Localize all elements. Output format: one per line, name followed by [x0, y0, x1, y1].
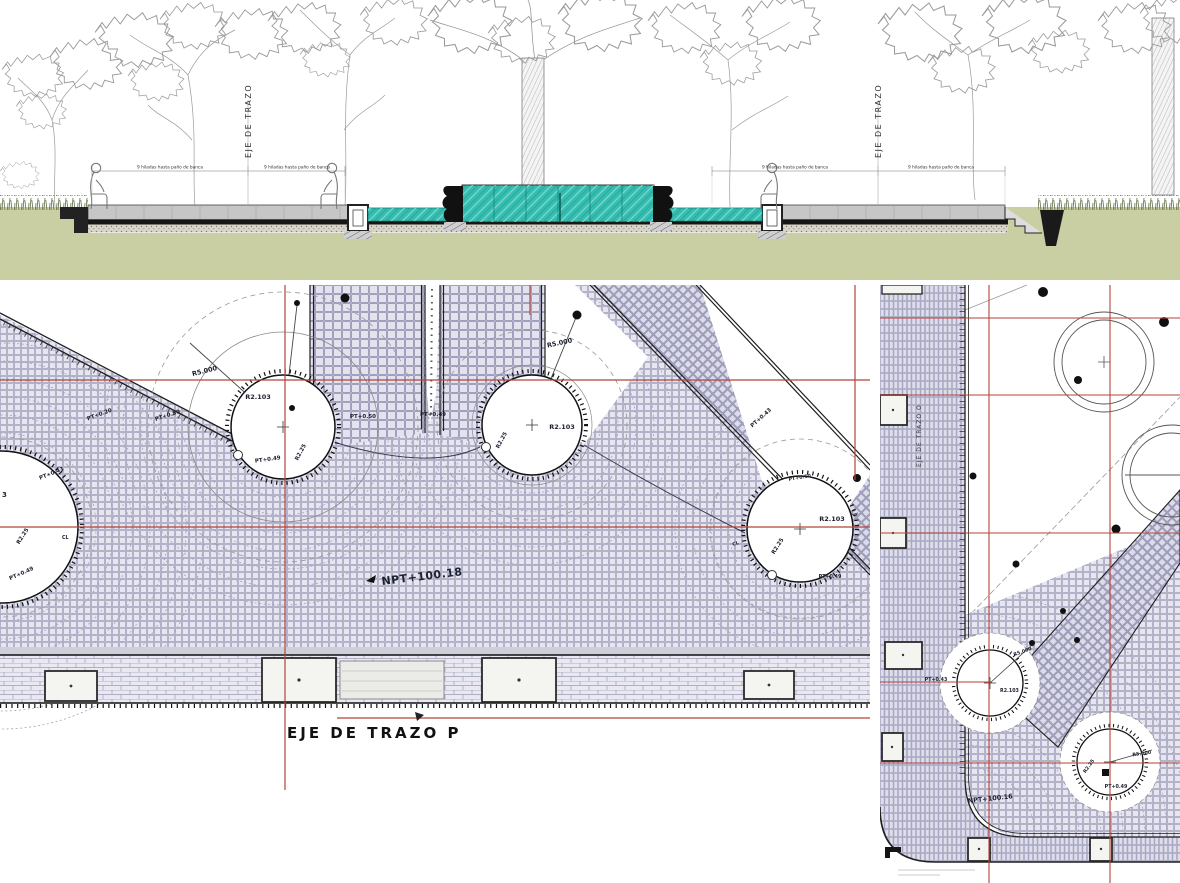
label-dpit1-pt: PT+0.43: [925, 677, 948, 683]
bench-slab: [340, 661, 444, 699]
label-pit-a-r2103: R2.103: [245, 393, 271, 401]
label-pit-d-rcut: 3: [2, 491, 7, 499]
axis-label-p: EJE DE TRAZO P: [287, 724, 461, 742]
dim-text-right-a: 9 hiladas hasta paño de banca: [762, 165, 828, 171]
grass-tufts-right: [1038, 195, 1180, 210]
axis-arrow-marker: [415, 712, 424, 721]
label-pit-d-cl: CL: [62, 535, 69, 541]
detail-tree-pit-1: [940, 633, 1040, 733]
axis-label-right: EJE DE TRAZO: [874, 84, 883, 158]
plan-drawing-detail: EJE DE TRAZO O R5.000 R2.103 PT+0.43 R5.…: [880, 285, 1180, 883]
plan-drawing-main: R5.000 R2.103 R2.25 PT+0.49 PT+0.50 PT+0…: [0, 285, 870, 790]
below-band-lines: [898, 870, 975, 875]
drawing-sheet: 9 hiladas hasta paño de banca 9 hiladas …: [0, 0, 1180, 883]
paving-plan-panel: R5.000 R2.103 R2.25 PT+0.49 PT+0.50 PT+0…: [0, 285, 870, 794]
trees-lineart: [0, 0, 1180, 208]
axis-label-left: EJE DE TRAZO: [244, 84, 253, 158]
dim-text-right-b: 9 hiladas hasta paño de banca: [908, 165, 974, 171]
label-pit-c-r2103: R2.103: [819, 515, 845, 523]
label-band1-pt: PT+0.50: [350, 414, 376, 420]
section-drawing-panel: 9 hiladas hasta paño de banca 9 hiladas …: [0, 0, 1180, 286]
label-pit-b-r2103: R2.103: [549, 423, 575, 431]
dimension-line-right: [712, 166, 1005, 204]
detail-plan-panel: EJE DE TRAZO O R5.000 R2.103 PT+0.43 R5.…: [880, 285, 1180, 883]
label-band2-pt: PT+0.49: [420, 412, 446, 418]
seated-figure-left: [91, 163, 107, 209]
dim-text-left-a: 9 hiladas hasta paño de banca: [137, 165, 203, 171]
border-course: [0, 647, 870, 655]
dimension-line-left: [92, 166, 345, 204]
label-pit-c-pt-low: PT+0.49: [819, 574, 842, 580]
label-dpit2-pt: PT+0.49: [1105, 784, 1128, 790]
dim-text-left-b: 9 hiladas hasta paño de banca: [264, 165, 330, 171]
bottom-walkway-strip: [0, 655, 870, 706]
axis-label-o: EJE DE TRAZO O: [916, 404, 923, 467]
label-dpit1-r2103: R2.103: [1000, 688, 1019, 694]
section-drawing: 9 hiladas hasta paño de banca 9 hiladas …: [0, 0, 1180, 282]
detail-tree-canopies: [1054, 312, 1180, 525]
